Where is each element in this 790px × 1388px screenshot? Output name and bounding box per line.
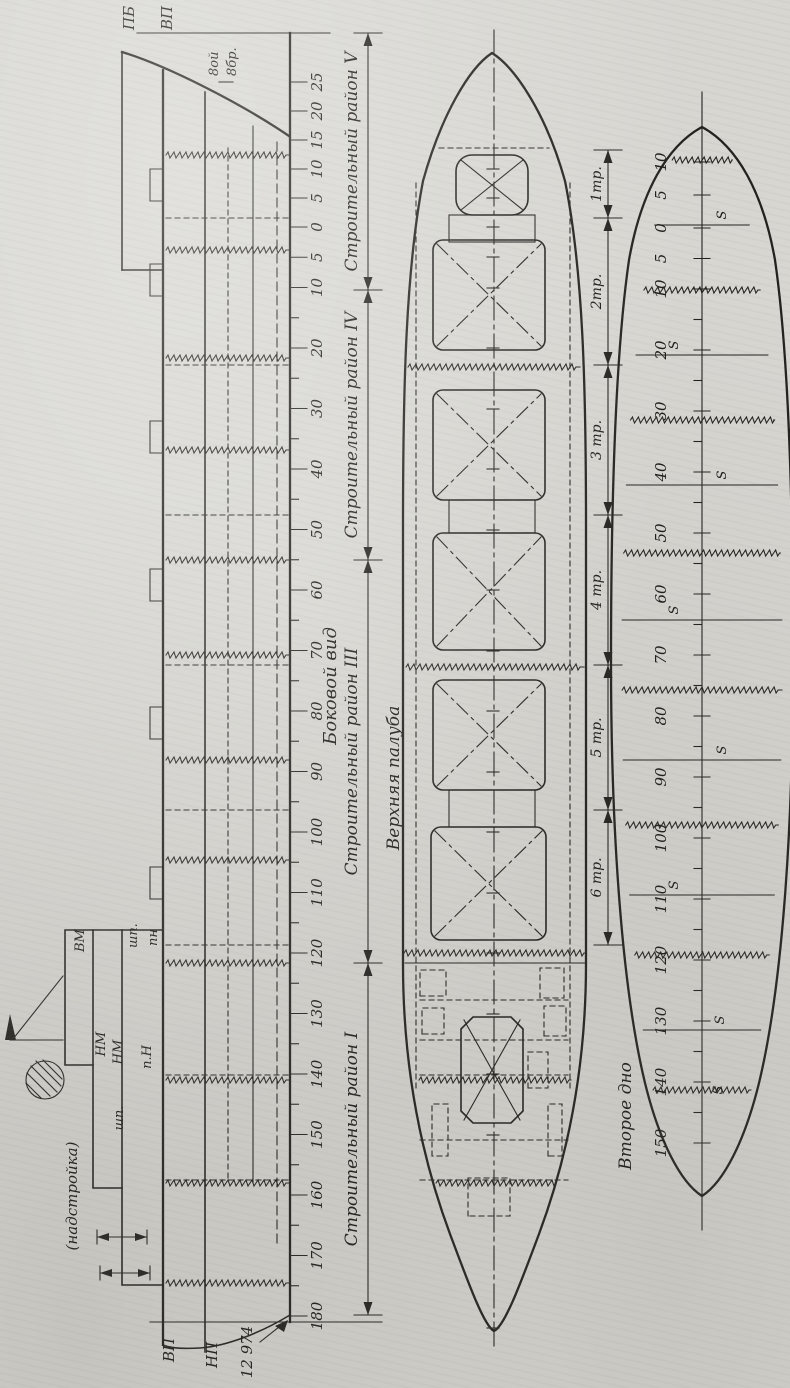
hatch-side-girders xyxy=(416,183,570,1088)
upper-deck-plan: Верхняя палуба xyxy=(384,30,586,1346)
deck-erection-joints xyxy=(404,364,586,1186)
dimension-label: 2тр. xyxy=(589,274,605,311)
hatch-coaming xyxy=(150,169,163,201)
dimension-label: 3 тр. xyxy=(589,420,605,460)
dimension-label: Строительный район IV xyxy=(342,310,362,538)
frame-number: 170 xyxy=(308,1241,326,1270)
weld-seam-mark: S xyxy=(711,1085,726,1094)
erection-joint xyxy=(166,1077,289,1083)
frame-number: 70 xyxy=(308,641,326,661)
frame-number: 20 xyxy=(652,340,670,361)
bottom-frame-scale: 1050510203040506070809010011012013014015… xyxy=(652,152,710,1157)
hold-dimensions: 1тр.2тр.3 тр.4 тр.5 тр.6 тр. xyxy=(589,150,622,945)
hatch-coaming xyxy=(150,421,163,453)
dimension-label: Строительный район V xyxy=(342,50,362,272)
deckhouse-compartment xyxy=(548,1104,562,1156)
frame-number: 160 xyxy=(308,1180,326,1209)
weld-seam-mark: S xyxy=(713,1015,728,1024)
masthouse-3 xyxy=(449,790,535,827)
frame-number: 70 xyxy=(652,645,670,665)
bow-note-line1: 8ой xyxy=(207,52,222,76)
stern-counter-profile xyxy=(163,1315,290,1348)
erection-joint xyxy=(166,1280,289,1286)
frame-number: 80 xyxy=(652,706,670,726)
boat-deck-label-lower: шп. xyxy=(112,1106,127,1131)
superstructure xyxy=(5,930,163,1285)
cargo-hatch-1 xyxy=(456,155,528,215)
frame-number: 140 xyxy=(308,1059,326,1088)
frame-number: 110 xyxy=(652,884,670,913)
dimension-label: 4 тр. xyxy=(589,570,605,611)
frame-number: 5 xyxy=(652,190,670,200)
frame-number: 90 xyxy=(308,762,326,782)
frame-number: 90 xyxy=(652,767,670,787)
side-frame-scale: 2520151050510203040506070809010011012013… xyxy=(290,72,326,1330)
frame-number: 180 xyxy=(308,1301,326,1330)
frame-number: 100 xyxy=(652,823,670,852)
erection-joint xyxy=(166,1180,289,1186)
frame-number: 40 xyxy=(652,462,670,483)
deckhouse-compartment xyxy=(432,1104,448,1156)
rotated-drawing-stage: Боковой вид ПБ ВП ВП НП 12 974 8ой 8бр. … xyxy=(0,0,790,1388)
boat-deck-label-upper: шп. xyxy=(126,923,141,948)
cargo-hatch-4 xyxy=(433,533,545,650)
hatch-coamings xyxy=(150,169,163,899)
weld-seam-mark: S xyxy=(667,605,682,614)
engine-casing-hatch-cross xyxy=(464,1020,520,1120)
frame-number: 30 xyxy=(308,399,326,419)
deckhouse-compartment xyxy=(544,1006,566,1036)
hatch-coaming xyxy=(150,569,163,601)
frame-number: 60 xyxy=(308,580,326,600)
double-bottom-title: Второе дно xyxy=(616,1062,636,1171)
tier-dimension-arrows xyxy=(97,1230,150,1280)
masthouse-1 xyxy=(449,215,535,242)
upper-deck-title: Верхняя палуба xyxy=(384,706,404,851)
frame-number: 130 xyxy=(652,1006,670,1035)
double-bottom-plan: SSSSSSSS 1050510203040506070809010011012… xyxy=(611,92,790,1230)
erection-joint xyxy=(166,960,289,966)
cargo-hatch-6 xyxy=(431,827,546,940)
hatch-coaming xyxy=(150,707,163,739)
frame-number: 5 xyxy=(652,254,670,264)
frame-number: 60 xyxy=(652,584,670,604)
nav-bridge-label-1: НМ xyxy=(94,1031,109,1057)
erection-joint xyxy=(166,447,289,453)
superstructure-deck-label-upper: пн xyxy=(146,929,161,946)
frame-number: 100 xyxy=(308,817,326,846)
frame-number: 130 xyxy=(308,999,326,1028)
frame-number: 10 xyxy=(308,278,326,298)
weld-seam-marks: SSSSSSSS xyxy=(667,210,730,1094)
frame-number: 10 xyxy=(652,152,670,172)
frame-number: 25 xyxy=(308,72,326,92)
deck-erection-joint xyxy=(406,664,584,670)
cargo-hatch-5 xyxy=(433,680,545,790)
weld-seam-mark: S xyxy=(715,470,730,479)
length-dimension-value: 12 974 xyxy=(238,1326,256,1379)
frame-number: 150 xyxy=(308,1120,326,1149)
frame-number: 5 xyxy=(308,252,326,262)
mast-stay xyxy=(13,976,63,1039)
frame-number: 40 xyxy=(308,459,326,480)
superstructure-deck-label: п.Н xyxy=(140,1044,155,1069)
frame-number: 30 xyxy=(652,401,670,421)
frame-number: 10 xyxy=(652,279,670,299)
deckhouse-compartment xyxy=(422,1008,444,1034)
flag-pennant xyxy=(5,1014,16,1040)
stern-vp-label: ВП xyxy=(160,1337,178,1363)
dimension-label: 1тр. xyxy=(589,166,605,202)
side-view: Боковой вид ПБ ВП ВП НП 12 974 8ой 8бр. … xyxy=(5,5,382,1378)
scanned-figure-page: Боковой вид ПБ ВП ВП НП 12 974 8ой 8бр. … xyxy=(0,0,790,1388)
deck-erection-joint xyxy=(436,1180,556,1186)
funnel-hatching xyxy=(26,1060,62,1098)
deckhouse-tier1 xyxy=(122,930,163,1285)
frame-number: 10 xyxy=(308,159,326,179)
weld-seam-mark: S xyxy=(715,745,730,754)
upper-deck-line-label: ВП xyxy=(158,5,176,31)
ship-construction-diagram: Боковой вид ПБ ВП ВП НП 12 974 8ой 8бр. … xyxy=(0,0,790,1388)
frame-number: 150 xyxy=(652,1128,670,1157)
frame-number: 15 xyxy=(308,130,326,149)
frame-number: 80 xyxy=(308,701,326,721)
dimension-label: Строительный район III xyxy=(342,647,362,875)
deckhouse-compartment xyxy=(420,970,446,996)
forecastle-line-label: ПБ xyxy=(120,6,138,31)
frame-number: 50 xyxy=(652,523,670,543)
frame-number: 50 xyxy=(308,520,326,540)
frame-number: 0 xyxy=(652,223,670,233)
cargo-hatch-3 xyxy=(433,390,545,500)
frame-number: 110 xyxy=(308,878,326,907)
frame-number: 120 xyxy=(308,938,326,967)
stern-np-label: НП xyxy=(203,1341,221,1369)
dimension-label: Строительный район I xyxy=(342,1032,362,1247)
weld-seam-mark: S xyxy=(715,210,730,219)
deck-centerline-frame-ticks xyxy=(487,169,499,1328)
dimension-label: 5 тр. xyxy=(589,717,605,757)
frame-number: 140 xyxy=(652,1067,670,1096)
bridge-deck-label: ВМ xyxy=(73,928,88,953)
frame-number: 120 xyxy=(652,945,670,974)
frame-number: 5 xyxy=(308,193,326,203)
superstructure-note: (надстройка) xyxy=(63,1141,81,1250)
deckhouse-compartment xyxy=(540,968,564,998)
frame-number: 0 xyxy=(308,222,326,232)
dimension-label: 6 тр. xyxy=(589,857,605,897)
hatch-coaming xyxy=(150,264,163,296)
frame-number: 20 xyxy=(308,101,326,122)
hatch-coaming xyxy=(150,867,163,899)
frame-number: 20 xyxy=(308,338,326,359)
masthouse-2 xyxy=(449,500,535,533)
bow-note-line2: 8бр. xyxy=(225,47,240,76)
construction-region-dimensions: Строительный район VСтроительный район I… xyxy=(342,33,382,1315)
nav-bridge-label-2: НМ xyxy=(111,1039,126,1065)
